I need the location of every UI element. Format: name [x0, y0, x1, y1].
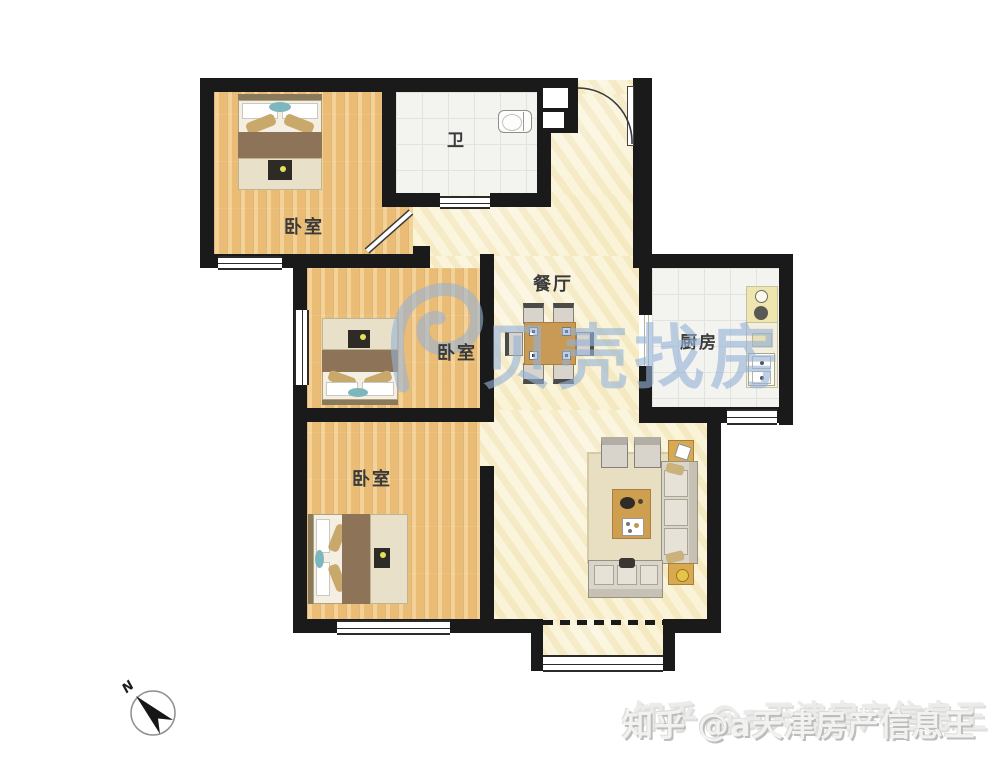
room-label-bedroom-1: 卧室	[284, 213, 324, 239]
sofa	[661, 461, 698, 564]
floor-plan-image: 卧室 卧室 卧室 卫 餐厅 厨房 N 贝壳找房 知乎 @a天津房产信息王 知乎 …	[0, 0, 1000, 767]
room-label-dining: 餐厅	[533, 270, 573, 296]
window-balcony	[543, 655, 663, 672]
sofa-backrest	[689, 462, 697, 563]
bed-blanket	[322, 350, 398, 372]
wall-entry-right	[633, 78, 652, 268]
loveseat	[588, 560, 663, 598]
balcony-opening-dashed	[543, 620, 663, 625]
brand-watermark-text: 贝壳找房	[482, 302, 786, 403]
living-room-set	[586, 436, 700, 600]
wall-kitchen-top	[645, 254, 793, 268]
bed-accent	[269, 102, 291, 112]
floor-entry-threshold	[578, 80, 633, 94]
loveseat-cushion	[640, 565, 658, 585]
wall-bathroom-bottom-left	[382, 193, 440, 207]
armchair	[634, 437, 661, 468]
bed-bedroom-2	[322, 318, 398, 405]
floor-bedroom-1-doorway	[382, 207, 413, 256]
window-bedroom2	[294, 310, 309, 385]
floor-balcony	[543, 619, 663, 659]
side-table	[668, 563, 694, 585]
bed-bedroom-3	[308, 514, 408, 604]
bed-accent	[348, 388, 368, 397]
room-label-bathroom: 卫	[447, 126, 466, 151]
window-kitchen	[727, 409, 777, 425]
compass-arrow	[136, 696, 173, 734]
wall-bedroom1-bathroom	[382, 78, 396, 207]
window-bedroom3	[337, 620, 450, 635]
room-label-bedroom-3: 卧室	[352, 465, 392, 491]
side-table	[668, 440, 694, 463]
bed-tv-dot	[380, 552, 386, 558]
bed-tv-dot	[360, 334, 366, 340]
bed-accent	[315, 550, 324, 568]
bed-tv-panel	[348, 330, 370, 348]
wall-bedroom2-3-divider	[300, 408, 494, 422]
loveseat-back	[589, 589, 662, 597]
tray	[622, 518, 644, 536]
bed-headboard	[322, 400, 398, 405]
wall-balcony-left	[531, 619, 543, 671]
bed-tv-panel	[374, 548, 390, 568]
bed-bedroom-1	[238, 94, 322, 190]
cup	[638, 499, 643, 504]
credit-watermark: 知乎 @a天津房产信息王	[622, 700, 976, 745]
floor-bathroom	[396, 92, 537, 195]
tray-item	[626, 522, 630, 526]
armchair	[601, 437, 628, 468]
bed-blanket	[238, 132, 322, 158]
toilet-seat	[502, 114, 522, 131]
lamp	[674, 443, 692, 461]
entry-cabinet-shelf	[543, 112, 564, 128]
window-bedroom1	[218, 256, 282, 270]
entry-cabinet-shelf	[543, 88, 568, 108]
bed-blanket	[342, 514, 370, 604]
room-label-bedroom-2: 卧室	[437, 339, 477, 365]
toilet-tank	[523, 112, 524, 131]
wall-left-upper	[200, 78, 214, 268]
loveseat-cushion	[594, 565, 614, 585]
loveseat-item	[619, 558, 635, 568]
entry-door-leaf	[627, 86, 634, 146]
wall-corner-post	[413, 246, 430, 260]
teapot	[620, 497, 635, 509]
bed-tv-dot	[280, 166, 286, 172]
tray-item	[628, 529, 632, 533]
compass-north-label: N	[119, 678, 137, 696]
toilet	[498, 110, 532, 133]
gold-bowl	[676, 569, 689, 582]
wall-balcony-right	[663, 619, 675, 671]
wall-living-right	[707, 423, 721, 633]
loveseat-cushion	[617, 565, 637, 585]
tray-item	[634, 523, 639, 528]
bathroom-door	[440, 196, 490, 209]
sofa-cushion	[664, 499, 688, 526]
wall-bathroom-bottom-right	[490, 193, 537, 207]
wall-bedroom3-right	[480, 466, 494, 633]
coffee-table	[612, 489, 651, 539]
compass-circle	[131, 691, 175, 735]
